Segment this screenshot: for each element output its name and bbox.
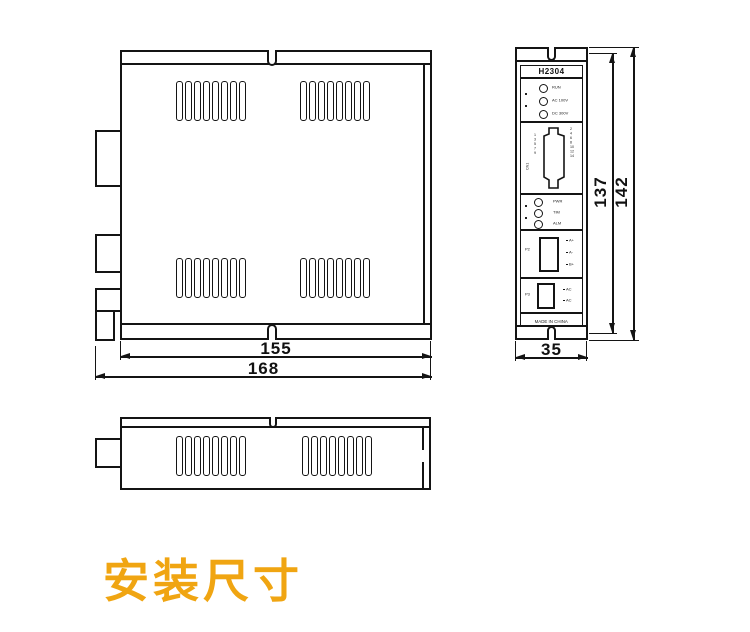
- vent-slot: [336, 81, 343, 121]
- dim-137-arrow-top: [609, 54, 615, 63]
- dsub-pins-left: 13579: [534, 133, 536, 156]
- side-view-top-notch: [269, 417, 277, 428]
- vent-slot: [194, 436, 201, 476]
- vent-slot: [176, 258, 183, 298]
- vent-slot: [363, 81, 370, 121]
- vent-slot: [176, 436, 183, 476]
- vent-slot: [176, 81, 183, 121]
- dim-155-line: [120, 356, 432, 358]
- dim-142-arrow-top: [630, 48, 636, 57]
- vent-slot: [212, 436, 219, 476]
- panel-section-terminal-1: P2 A+ A- B+: [520, 230, 583, 278]
- dim-35-arrow-left: [516, 354, 525, 360]
- vent-slot: [300, 81, 307, 121]
- terminal-pin: AC: [563, 298, 572, 303]
- vent-slot: [239, 81, 246, 121]
- panel-footer-plate: MADE IN CHINA: [520, 313, 583, 326]
- vent-slot: [239, 436, 246, 476]
- tick-mark: [525, 93, 527, 95]
- vent-slot: [338, 436, 345, 476]
- dim-142-ext-bottom: [589, 340, 639, 341]
- top-view-bottom-notch: [267, 324, 277, 340]
- vent-slot: [194, 81, 201, 121]
- vent-slot: [365, 436, 372, 476]
- vent-slot: [327, 81, 334, 121]
- vent-slot-group-bottom-left: [176, 258, 246, 298]
- dim-137-ext-bottom: [589, 333, 617, 334]
- dim-137-label: 137: [591, 171, 611, 213]
- vent-slot: [309, 258, 316, 298]
- vent-slot-group-side-right: [302, 436, 372, 476]
- vent-slot: [311, 436, 318, 476]
- dim-142-arrow-bottom: [630, 330, 636, 339]
- top-view-flange-bottom-line: [122, 323, 430, 325]
- side-view-body: [120, 417, 431, 490]
- panel-model-plate: H2304: [520, 65, 583, 78]
- side-view-right-strip-upper: [422, 426, 424, 450]
- panel-bottom-notch: [547, 326, 556, 340]
- page-title: 安装尺寸: [103, 545, 303, 611]
- panel-section-terminal-2: P3 AC AC: [520, 278, 583, 313]
- terminal-pin: A+: [566, 238, 574, 243]
- top-view-connector-tab-2: [95, 234, 122, 273]
- vent-slot: [239, 258, 246, 298]
- vent-slot: [318, 81, 325, 121]
- vent-slot: [327, 258, 334, 298]
- dsub-pins-right: 2468101214: [570, 127, 574, 159]
- vent-slot: [354, 258, 361, 298]
- vent-slot: [185, 81, 192, 121]
- drawing-canvas: 155 168 H2304 RUN AC 100V DC 300V CN1: [0, 0, 750, 632]
- vent-slot: [203, 436, 210, 476]
- vent-slot: [345, 81, 352, 121]
- vent-slot: [354, 81, 361, 121]
- top-view-connector-tab-3: [95, 288, 122, 312]
- vent-slot: [363, 258, 370, 298]
- front-panel-view: H2304 RUN AC 100V DC 300V CN1 13579 2468…: [515, 47, 588, 340]
- led-label: RUN: [552, 85, 561, 90]
- vent-slot: [194, 258, 201, 298]
- vent-slot: [212, 81, 219, 121]
- vent-slot: [336, 258, 343, 298]
- led-icon: [539, 110, 548, 119]
- dim-142-label: 142: [612, 171, 632, 213]
- panel-section-mid-leds: PWR TIM ALM: [520, 194, 583, 230]
- panel-top-notch: [547, 47, 556, 61]
- vent-slot: [221, 81, 228, 121]
- led-label: DC 300V: [552, 111, 568, 116]
- side-view-right-strip-lower: [422, 462, 424, 488]
- led-icon: [539, 84, 548, 93]
- terminal-block-icon: [539, 237, 559, 272]
- dim-168-arrow-left: [96, 373, 105, 379]
- side-view-connector-tab: [95, 438, 122, 468]
- vent-slot-group-side-left: [176, 436, 246, 476]
- vent-slot-group-top-right: [300, 81, 370, 121]
- vent-slot: [185, 258, 192, 298]
- dsub-connector-icon: [540, 127, 568, 191]
- vent-slot: [347, 436, 354, 476]
- tick-mark: [525, 205, 527, 207]
- dsub-side-label: CN1: [525, 152, 529, 170]
- dim-137-arrow-bottom: [609, 323, 615, 332]
- vent-slot-group-top-left: [176, 81, 246, 121]
- top-view-connector-tab-4: [95, 310, 115, 341]
- terminal-label: P2: [525, 247, 530, 252]
- led-label: TIM: [553, 210, 560, 215]
- tick-mark: [525, 105, 527, 107]
- led-icon: [534, 220, 543, 229]
- vent-slot: [221, 258, 228, 298]
- dim-168-line: [95, 376, 432, 378]
- terminal-block-icon: [537, 283, 555, 309]
- panel-footer-text: MADE IN CHINA: [535, 318, 568, 324]
- led-label: ALM: [553, 221, 561, 226]
- dim-142-line: [633, 47, 635, 340]
- vent-slot: [345, 258, 352, 298]
- terminal-pin: AC: [563, 287, 572, 292]
- vent-slot: [212, 258, 219, 298]
- led-label: AC 100V: [552, 98, 568, 103]
- led-label: PWR: [553, 199, 562, 204]
- vent-slot: [318, 258, 325, 298]
- dim-35-arrow-right: [578, 354, 587, 360]
- panel-section-dsub: CN1 13579 2468101214: [520, 122, 583, 194]
- panel-section-status-leds: RUN AC 100V DC 300V: [520, 78, 583, 122]
- vent-slot: [203, 81, 210, 121]
- top-view-right-strip-line: [423, 63, 425, 325]
- vent-slot: [302, 436, 309, 476]
- vent-slot-group-bottom-right: [300, 258, 370, 298]
- top-view-connector-tab-1: [95, 130, 122, 187]
- vent-slot: [320, 436, 327, 476]
- top-view-body: [120, 50, 432, 340]
- vent-slot: [329, 436, 336, 476]
- top-view-top-notch: [267, 50, 277, 66]
- panel-model-label: H2304: [521, 67, 582, 76]
- dim-168-arrow-right: [422, 373, 431, 379]
- vent-slot: [309, 81, 316, 121]
- vent-slot: [203, 258, 210, 298]
- vent-slot: [185, 436, 192, 476]
- pin-label: 9: [534, 151, 536, 156]
- vent-slot: [356, 436, 363, 476]
- vent-slot: [230, 258, 237, 298]
- terminal-pin: A-: [566, 250, 573, 255]
- tick-mark: [525, 217, 527, 219]
- led-icon: [534, 198, 543, 207]
- vent-slot: [221, 436, 228, 476]
- led-icon: [534, 209, 543, 218]
- vent-slot: [300, 258, 307, 298]
- pin-label: 14: [570, 154, 574, 159]
- vent-slot: [230, 81, 237, 121]
- terminal-pin: B+: [566, 262, 574, 267]
- vent-slot: [230, 436, 237, 476]
- terminal-label: P3: [525, 292, 530, 297]
- led-icon: [539, 97, 548, 106]
